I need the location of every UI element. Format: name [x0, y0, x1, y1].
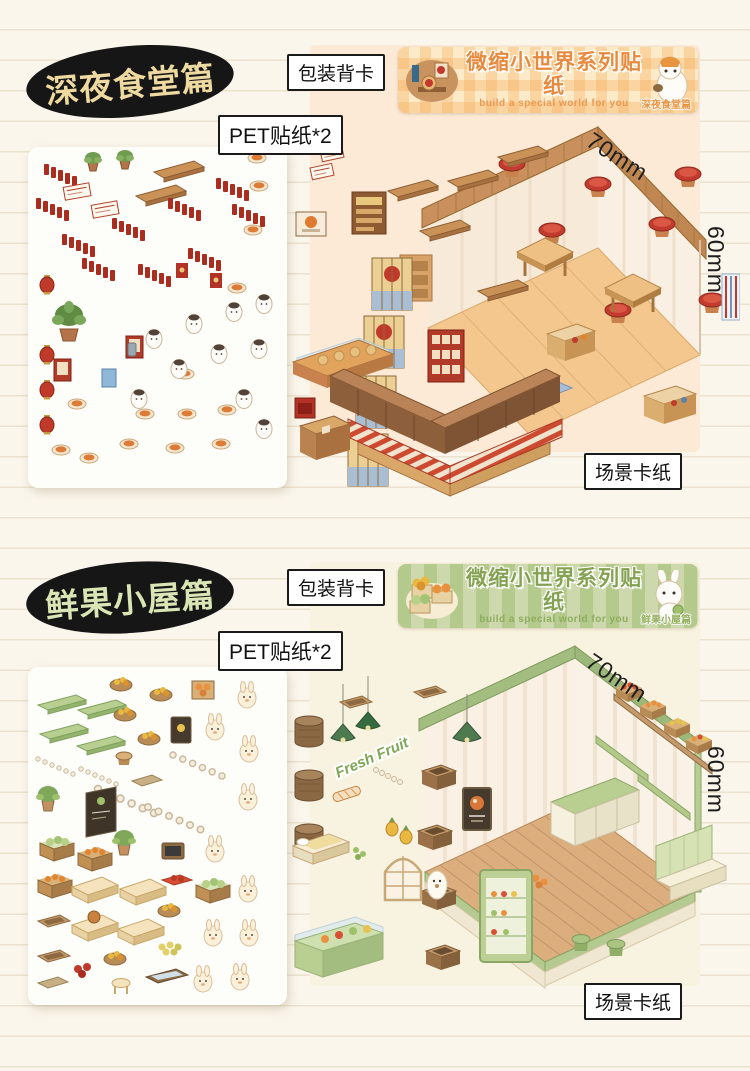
section-title-badge-diner: 深夜食堂篇 [23, 37, 236, 126]
series-title: 微缩小世界系列贴纸 [466, 567, 642, 613]
banner-diner: 微缩小世界系列贴纸 build a special world for you … [398, 47, 698, 113]
sticker-green-planks [38, 695, 126, 755]
series-title: 微缩小世界系列贴纸 [466, 51, 642, 97]
poster-stickers [296, 145, 386, 236]
sticker-orange-box [192, 681, 214, 699]
menu-board-sticker [428, 330, 464, 382]
series-subtitle: build a special world for you [466, 98, 642, 109]
sticker-red-cluster [74, 963, 91, 978]
sticker-sheet-diner [28, 147, 287, 488]
scene-card-label-fruit: 场景卡纸 [584, 983, 682, 1020]
sticker-bunnies [194, 682, 258, 993]
sticker-stool-brown [116, 752, 132, 765]
fruit-sticker-sheet-art [28, 667, 287, 1005]
sticker-garlands [36, 752, 225, 833]
display-counter-sticker [295, 917, 383, 977]
bed-sticker [293, 834, 349, 864]
sticker-sheet-fruit [28, 667, 287, 1005]
mascot-sticker [427, 871, 447, 899]
sticker-small-chalkboard [171, 717, 191, 743]
section-title-diner: 深夜食堂篇 [43, 50, 217, 113]
window-sticker [385, 856, 421, 900]
sticker-big-plant [52, 301, 86, 341]
sticker-sign-board [86, 787, 116, 837]
height-dimension-fruit: 60mm [702, 746, 729, 814]
series-subtitle: build a special world for you [466, 614, 642, 625]
small-cabinet-sticker [300, 416, 350, 460]
sticker-menus [63, 183, 119, 218]
sticker-can [128, 343, 136, 356]
fridge-sticker [480, 870, 532, 962]
banner-edition-tag: 深夜食堂篇 [641, 96, 691, 111]
pet-sticker-label-diner: PET贴纸*2 [218, 115, 343, 155]
chalkboard-sticker [463, 788, 491, 830]
height-dimension-diner: 60mm [702, 226, 729, 294]
banner-edition-tag: 鲜果小屋篇 [641, 611, 691, 626]
page: 微缩小世界系列贴纸 build a special world for you … [0, 0, 750, 1071]
sticker-lanterns [40, 275, 54, 435]
sticker-bottle-rows [36, 164, 265, 287]
sticker-red-tray [162, 875, 192, 885]
banner-fruit: 微缩小世界系列贴纸 build a special world for you … [398, 564, 698, 628]
fruit-scene-illustration: Fresh Fruit [288, 636, 740, 1016]
fruit-banner-illustration-icon [404, 571, 460, 621]
red-box-sticker [295, 398, 315, 418]
diner-scene-illustration [288, 118, 740, 498]
section-title-fruit: 鲜果小屋篇 [44, 568, 217, 628]
sticker-stool [112, 979, 130, 995]
pet-sticker-label-fruit: PET贴纸*2 [218, 631, 343, 671]
garland-sticker [374, 768, 403, 785]
diner-sticker-sheet-art [28, 147, 287, 488]
sticker-grapes [159, 942, 182, 956]
diner-banner-illustration-icon [404, 55, 460, 105]
packaging-card-label-diner: 包装背卡 [287, 54, 385, 91]
scene-card-label-diner: 场景卡纸 [584, 453, 682, 490]
sticker-trays [38, 915, 70, 962]
sticker-tv [162, 843, 184, 859]
pineapple-stickers [353, 817, 412, 860]
basket-stickers [295, 716, 323, 855]
sticker-red-packets [176, 263, 222, 288]
sticker-tables [72, 877, 166, 945]
packaging-card-label-fruit: 包装背卡 [287, 569, 385, 606]
sticker-plants [84, 150, 134, 171]
section-title-badge-fruit: 鲜果小屋篇 [24, 555, 236, 640]
candy-strip-sticker [332, 785, 361, 802]
sticker-mirror [146, 969, 188, 983]
